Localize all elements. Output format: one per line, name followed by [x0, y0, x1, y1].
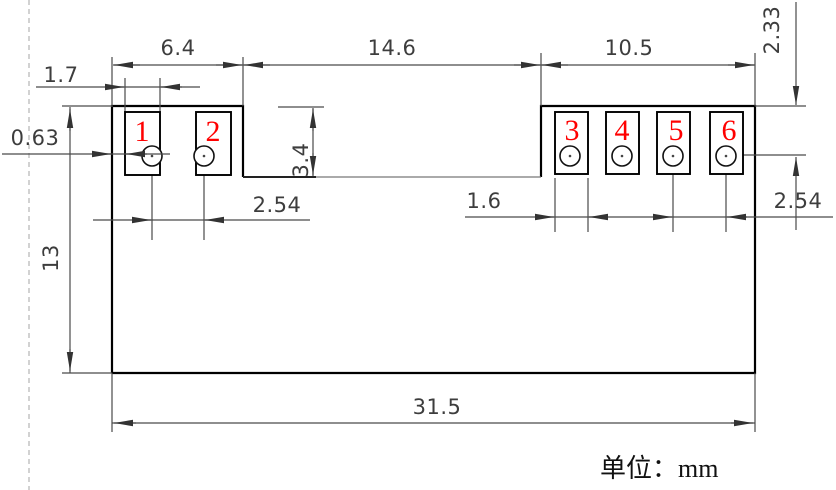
pad-label-4: 4: [615, 114, 630, 147]
pad-label-6: 6: [722, 114, 737, 147]
extension-lines: [62, 53, 806, 432]
dim-center-notch-width: 14.6: [243, 36, 541, 65]
dim-right-hole-pitch: 2.54: [653, 189, 822, 217]
dim-left-hole-pitch: 2.54: [93, 193, 310, 220]
dim-text-13: 13: [39, 244, 63, 272]
dim-right-pad-group-width: 10.5: [541, 36, 755, 65]
pad-label-2: 2: [206, 115, 221, 148]
dim-text-0-63: 0.63: [11, 126, 60, 150]
dim-text-1-6: 1.6: [467, 189, 502, 213]
dim-left-pad-group-width: 6.4: [113, 36, 243, 65]
dim-text-31-5: 31.5: [413, 395, 462, 419]
dim-text-14-6: 14.6: [368, 36, 417, 60]
dim-pad1-width: 1.7: [36, 63, 200, 87]
dim-text-1-7: 1.7: [44, 63, 79, 87]
dim-notch-depth: 3.4: [278, 107, 324, 177]
unit-note: 单位：mm: [600, 454, 718, 483]
dim-text-10-5: 10.5: [605, 36, 654, 60]
pad-label-3: 3: [565, 114, 580, 147]
drawing-canvas: 1 2 3 4 5 6 6.4 14.6 10.5 1.7 0.63: [0, 0, 836, 490]
dim-text-6-4: 6.4: [161, 36, 196, 60]
pad-label-5: 5: [669, 114, 684, 147]
footprint-dimension-drawing: 1 2 3 4 5 6 6.4 14.6 10.5 1.7 0.63: [0, 0, 836, 490]
dim-text-2-54-right: 2.54: [774, 189, 823, 213]
dim-body-width: 31.5: [112, 395, 755, 423]
dim-text-2-33: 2.33: [760, 6, 784, 55]
dim-text-3-4: 3.4: [289, 143, 313, 178]
pad-label-1: 1: [135, 115, 150, 148]
dim-text-2-54-left: 2.54: [253, 193, 302, 217]
